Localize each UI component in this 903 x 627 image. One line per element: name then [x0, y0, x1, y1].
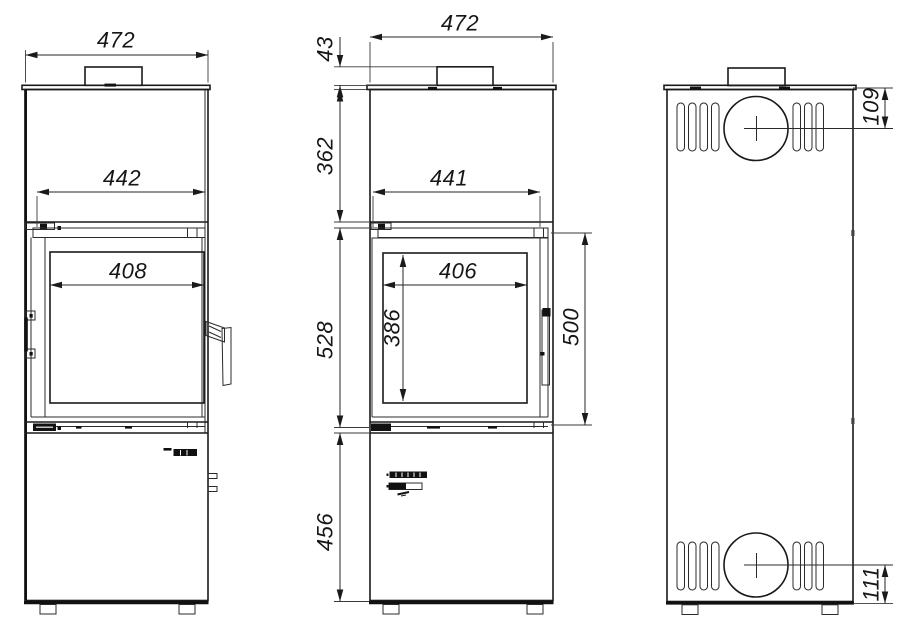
dim-collar-height: 43	[313, 36, 438, 97]
dim-label: 456	[313, 513, 338, 551]
dim-label: 528	[313, 321, 338, 359]
dim-overall-width-left: 472	[26, 28, 209, 83]
sill-mark	[488, 426, 497, 429]
vent-slot	[816, 542, 824, 590]
dim-door-width-front: 441	[373, 166, 540, 228]
dim-intake-offset-bottom: 111	[853, 565, 893, 603]
vent-slot	[712, 542, 720, 590]
collar-gasket-mark	[779, 87, 790, 90]
dim-door-section-height: 528	[313, 228, 378, 428]
handle-bar	[222, 328, 231, 386]
vent-slot	[816, 103, 824, 151]
slider-fill	[389, 483, 406, 490]
dim-label: 362	[313, 137, 338, 175]
left-side-view: 472 442 408	[22, 28, 231, 615]
dim-glass-width-front: 406	[383, 259, 527, 286]
handle-pin	[541, 352, 545, 356]
dim-label: 500	[559, 308, 584, 346]
air-control-sliders	[387, 472, 428, 497]
vent-slot	[700, 103, 708, 151]
latch-pin-bottom	[58, 426, 62, 430]
dim-label: 386	[380, 309, 405, 347]
dim-glass-width-left: 408	[50, 259, 204, 286]
slider-dot	[387, 485, 389, 488]
brand-logo	[164, 448, 198, 456]
vent-slot	[677, 542, 685, 590]
foot	[383, 605, 399, 615]
side-tab-upper	[208, 474, 217, 479]
dim-door-width-left: 442	[37, 166, 205, 228]
vent-slot	[700, 542, 708, 590]
collar-gasket-mark	[690, 87, 701, 90]
body-outline	[667, 90, 853, 602]
logo-block	[174, 449, 198, 456]
foot	[822, 605, 838, 615]
dim-label: 472	[441, 11, 479, 36]
dim-label: 442	[103, 166, 141, 191]
logo-dash	[164, 448, 172, 451]
vent-slot	[689, 542, 697, 590]
seam-tick	[851, 418, 854, 424]
stove-drawing: 472 442 408	[0, 0, 903, 627]
vent-slots-top	[677, 103, 824, 151]
dim-label: 441	[430, 166, 468, 191]
seam-tick	[851, 230, 854, 236]
collar-gasket-mark	[428, 87, 437, 90]
dim-label: 472	[97, 28, 135, 53]
dim-label: 406	[439, 259, 477, 284]
shelf-band-top	[378, 228, 548, 238]
vent-slot	[677, 103, 685, 151]
foot	[527, 605, 543, 615]
vent-slot	[689, 103, 697, 151]
side-tab-lower	[208, 487, 217, 492]
drawing-canvas: 472 442 408	[0, 0, 903, 627]
vent-slot	[712, 103, 720, 151]
vent-slot	[793, 103, 801, 151]
hinge-pin	[30, 314, 33, 318]
dim-label: 408	[109, 259, 147, 284]
slider-dot	[387, 474, 389, 477]
hinge-pin	[30, 352, 33, 356]
handle-bracket-slot	[209, 326, 221, 332]
vent-slot	[805, 542, 813, 590]
slider-arrow-mark	[401, 495, 406, 496]
sill-mark	[125, 426, 132, 429]
dim-base-height: 456	[313, 433, 370, 602]
dim-label: 111	[859, 567, 884, 602]
collar-gasket-mark	[105, 84, 117, 87]
dim-upper-body-height: 362	[313, 90, 370, 222]
latch-plate-bottom	[371, 424, 391, 432]
handle-latch	[543, 308, 551, 317]
vent-slot	[805, 103, 813, 151]
dim-label: 109	[859, 87, 884, 125]
foot	[179, 605, 195, 615]
flue-collar	[728, 68, 785, 86]
vent-slots-bottom	[677, 542, 824, 590]
sill-mark	[76, 426, 82, 429]
rear-view: 109 111	[664, 68, 893, 615]
dim-overall-width-front: 472	[370, 11, 553, 83]
hinge-bar	[24, 318, 28, 352]
front-view: 472 43 362 528 456	[313, 11, 593, 615]
door-handle	[541, 308, 551, 385]
foot	[682, 605, 698, 615]
vent-slot	[793, 542, 801, 590]
foot	[40, 605, 56, 615]
dim-label: 43	[313, 36, 338, 62]
flue-collar	[85, 67, 142, 85]
sill-mark	[427, 426, 440, 429]
slider-arrow-mark	[398, 492, 410, 495]
door-handle	[206, 322, 231, 386]
dim-door-height: 500	[551, 233, 592, 425]
flue-collar	[437, 67, 493, 86]
dim-flue-offset-top: 109	[853, 87, 893, 128]
collar-gasket-mark	[493, 87, 502, 90]
